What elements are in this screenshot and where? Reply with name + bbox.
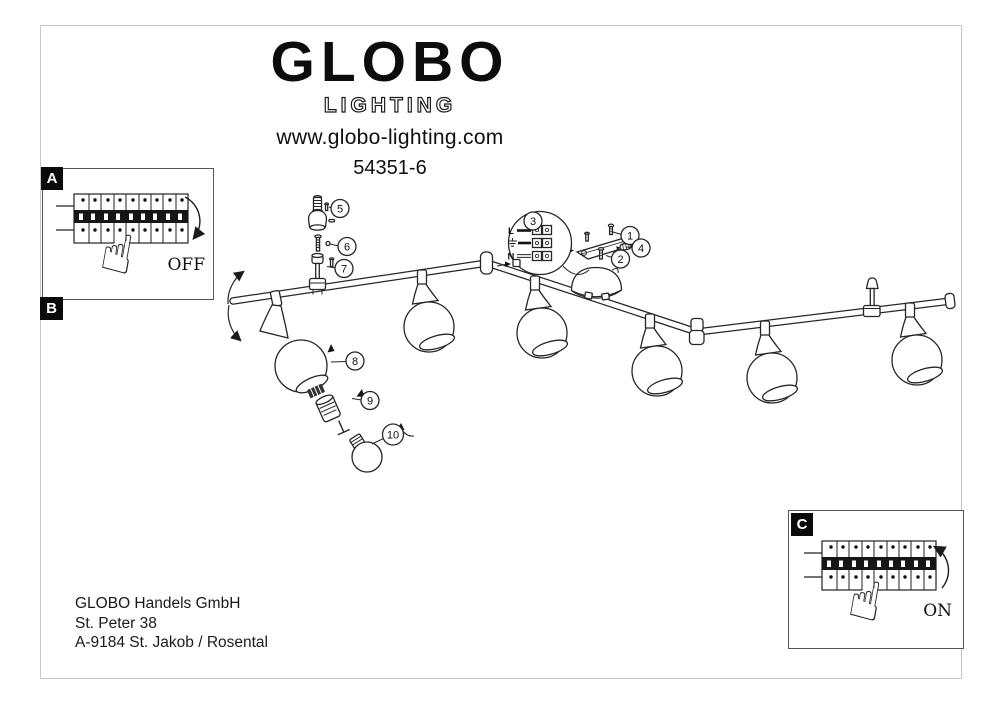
part-6-screw (315, 235, 330, 251)
direction-arrow-icon (328, 344, 335, 353)
wiring-detail-balloon: L N (497, 212, 589, 275)
callout-number: 7 (341, 263, 347, 275)
callout-9: 9 (352, 392, 379, 410)
contact-pin (333, 418, 350, 435)
fixture-exploded-diagram: L N (0, 0, 1000, 708)
small-screw (330, 258, 334, 267)
lamp-socket (315, 393, 341, 422)
ceiling-support-rod (864, 278, 881, 317)
light-bulb (349, 434, 382, 472)
callout-number: 4 (638, 243, 644, 255)
callout-6: 6 (330, 238, 356, 256)
screw-part-2 (598, 248, 603, 259)
live-label: L (508, 226, 514, 237)
callout-5: 5 (329, 200, 349, 218)
callout-10: 10 (372, 424, 404, 445)
callout-8: 8 (331, 352, 364, 370)
callout-number: 1 (627, 230, 633, 242)
screw-part-1 (608, 224, 613, 234)
instruction-sheet: GLOBO LIGHTING www.globo-lighting.com 54… (0, 0, 1000, 708)
callout-number: 6 (344, 241, 350, 253)
spot-lamp (892, 303, 944, 386)
rotate-arrow-icon (228, 272, 243, 340)
callout-number: 5 (337, 203, 343, 215)
callout-number: 2 (617, 254, 623, 266)
spot-lamps (404, 270, 944, 404)
spot-lamp (747, 321, 799, 404)
callout-number: 9 (367, 395, 373, 407)
step-c-label: C (791, 513, 813, 536)
callout-number: 3 (530, 216, 536, 228)
ceiling-canopy (572, 268, 622, 300)
lamp-cone (260, 305, 288, 338)
track-end-cap (945, 293, 956, 309)
track-elbow-joint (690, 319, 705, 345)
step-a-label: A (41, 167, 63, 190)
callout-number: 8 (352, 356, 358, 368)
canopy-cup (309, 211, 335, 231)
spot-lamp (404, 270, 456, 353)
callout-3: 3 (524, 212, 542, 230)
small-screw (585, 232, 589, 241)
small-screw (325, 203, 329, 211)
track-joint (481, 252, 493, 274)
step-b-label: B (40, 297, 63, 320)
callout-number: 10 (387, 429, 399, 441)
